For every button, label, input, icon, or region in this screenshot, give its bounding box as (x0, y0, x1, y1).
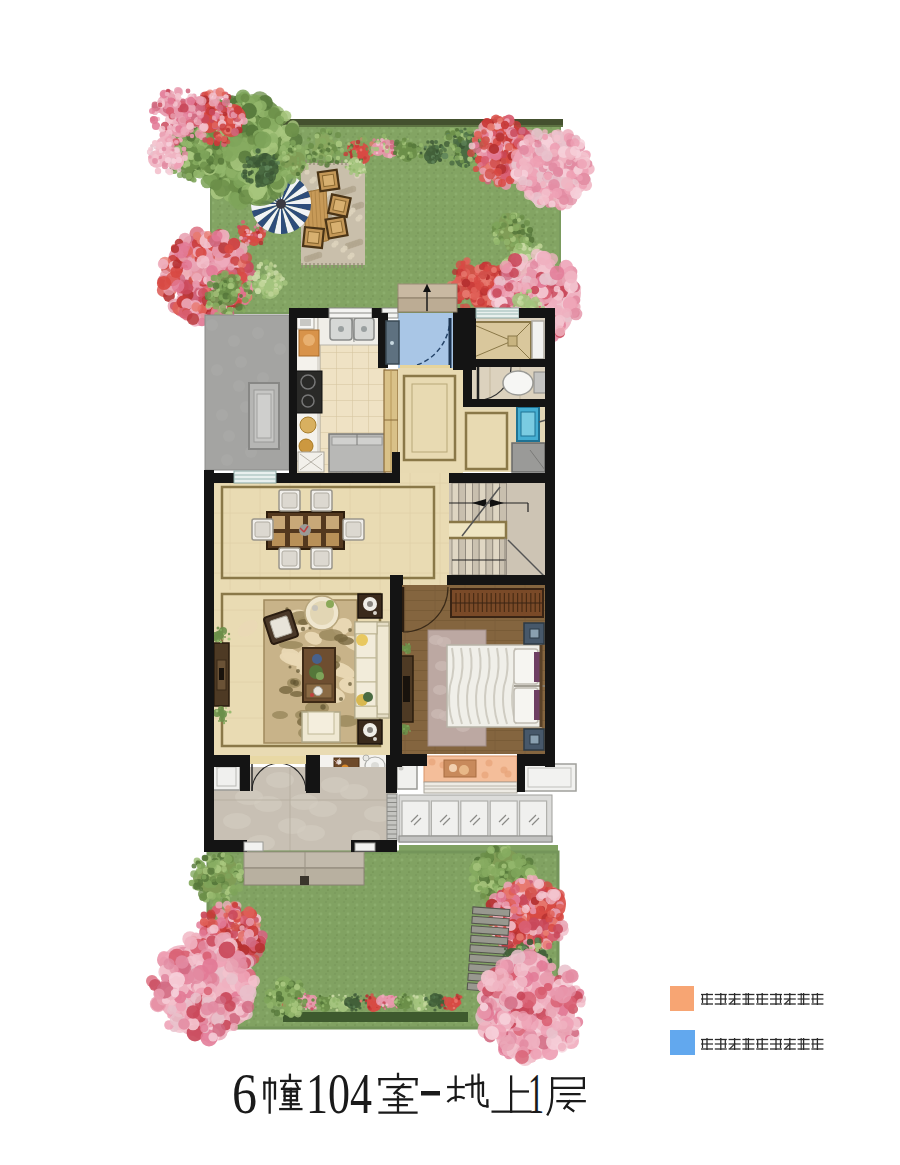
svg-text:104: 104 (306, 1061, 372, 1126)
svg-text:6: 6 (232, 1061, 257, 1126)
svg-text:1: 1 (528, 1061, 544, 1126)
